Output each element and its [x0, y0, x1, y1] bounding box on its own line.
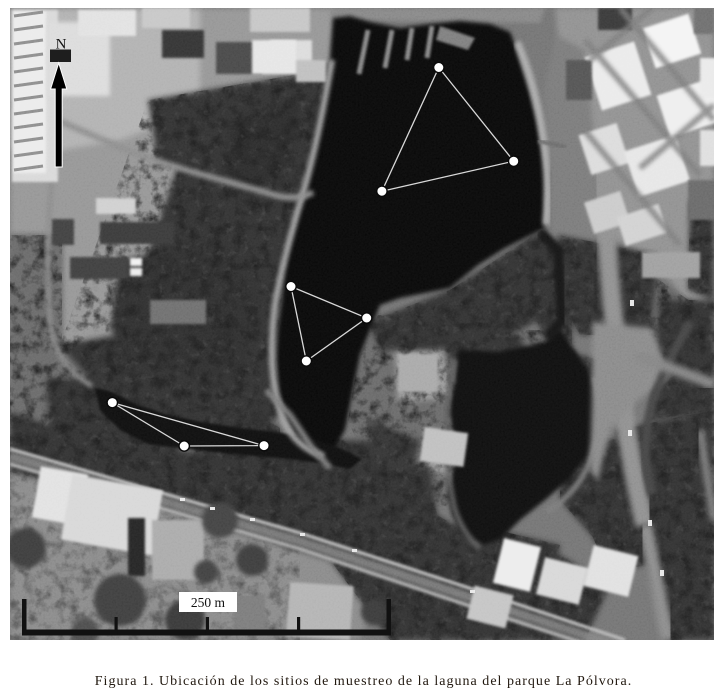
- svg-text:250 m: 250 m: [191, 595, 226, 610]
